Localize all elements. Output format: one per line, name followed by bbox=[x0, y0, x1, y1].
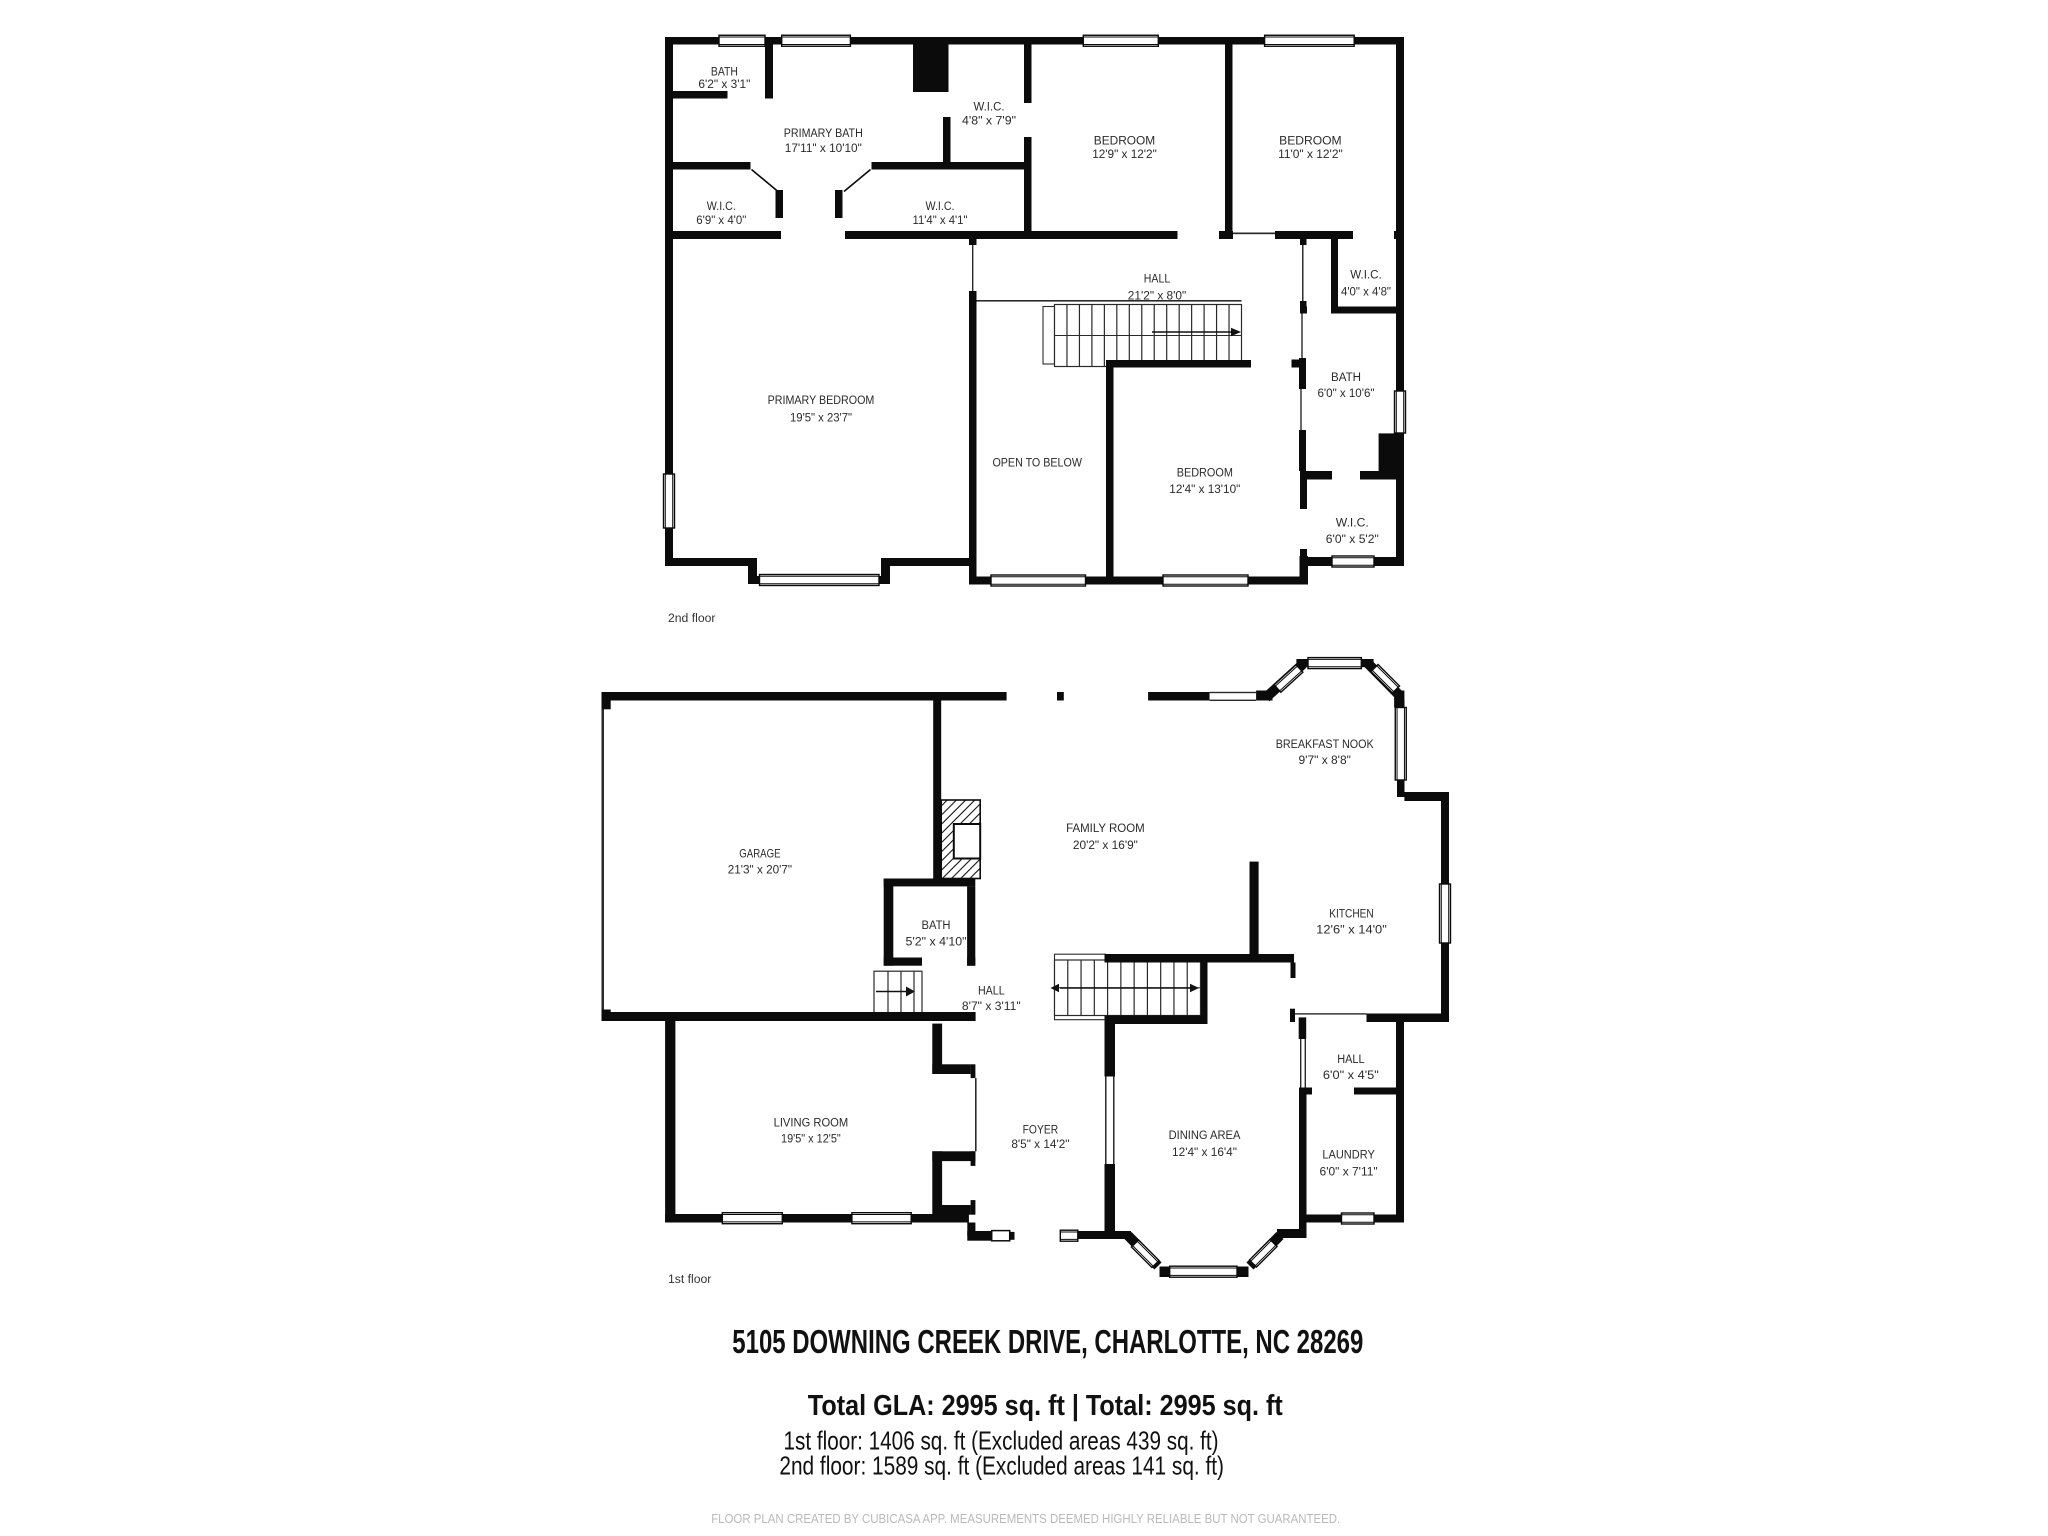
svg-text:BREAKFAST NOOK: BREAKFAST NOOK bbox=[1276, 737, 1375, 751]
svg-text:4'8" x 7'9": 4'8" x 7'9" bbox=[962, 114, 1016, 128]
svg-text:BATH: BATH bbox=[1331, 370, 1361, 384]
svg-text:W.I.C.: W.I.C. bbox=[1350, 268, 1382, 282]
svg-text:DINING AREA: DINING AREA bbox=[1169, 1128, 1241, 1142]
svg-text:12'9" x 12'2": 12'9" x 12'2" bbox=[1092, 147, 1157, 161]
svg-text:BEDROOM: BEDROOM bbox=[1094, 134, 1155, 148]
svg-text:17'11" x 10'10": 17'11" x 10'10" bbox=[785, 141, 862, 155]
svg-text:12'4" x 16'4": 12'4" x 16'4" bbox=[1172, 1145, 1237, 1159]
svg-text:12'4" x 13'10": 12'4" x 13'10" bbox=[1169, 482, 1240, 496]
svg-text:W.I.C.: W.I.C. bbox=[974, 100, 1005, 114]
svg-text:6'0" x 5'2": 6'0" x 5'2" bbox=[1326, 532, 1379, 546]
svg-text:OPEN TO BELOW: OPEN TO BELOW bbox=[992, 456, 1082, 470]
svg-text:21'2" x 8'0": 21'2" x 8'0" bbox=[1128, 289, 1187, 303]
svg-text:FOYER: FOYER bbox=[1023, 1123, 1059, 1137]
svg-text:8'7" x 3'11": 8'7" x 3'11" bbox=[962, 999, 1021, 1013]
svg-text:BATH: BATH bbox=[922, 918, 951, 932]
svg-text:BEDROOM: BEDROOM bbox=[1279, 134, 1342, 148]
svg-text:11'4" x 4'1": 11'4" x 4'1" bbox=[913, 213, 968, 227]
svg-text:4'0" x 4'8": 4'0" x 4'8" bbox=[1341, 285, 1391, 299]
svg-text:Total GLA: 2995 sq. ft | Total: Total GLA: 2995 sq. ft | Total: 2995 sq.… bbox=[808, 1390, 1283, 1422]
svg-text:HALL: HALL bbox=[1144, 272, 1170, 286]
svg-text:GARAGE: GARAGE bbox=[739, 847, 780, 861]
svg-text:6'0" x 7'11": 6'0" x 7'11" bbox=[1320, 1165, 1378, 1179]
svg-text:BEDROOM: BEDROOM bbox=[1177, 466, 1233, 480]
svg-text:5'2" x 4'10": 5'2" x 4'10" bbox=[906, 935, 967, 949]
svg-text:8'5" x 14'2": 8'5" x 14'2" bbox=[1011, 1137, 1069, 1151]
svg-text:19'5" x 23'7": 19'5" x 23'7" bbox=[790, 411, 852, 425]
svg-text:2nd floor: 2nd floor bbox=[668, 611, 715, 625]
svg-text:12'6" x 14'0": 12'6" x 14'0" bbox=[1316, 923, 1387, 937]
svg-text:FLOOR PLAN CREATED BY CUBICASA: FLOOR PLAN CREATED BY CUBICASA APP. MEAS… bbox=[711, 1511, 1340, 1526]
svg-text:KITCHEN: KITCHEN bbox=[1329, 907, 1373, 921]
svg-text:W.I.C.: W.I.C. bbox=[1336, 516, 1369, 530]
svg-text:HALL: HALL bbox=[978, 983, 1005, 997]
svg-text:21'3" x 20'7": 21'3" x 20'7" bbox=[728, 863, 792, 877]
svg-text:6'9" x 4'0": 6'9" x 4'0" bbox=[696, 213, 746, 227]
svg-text:W.I.C.: W.I.C. bbox=[707, 199, 736, 213]
svg-text:20'2" x 16'9": 20'2" x 16'9" bbox=[1073, 838, 1138, 852]
svg-text:PRIMARY BEDROOM: PRIMARY BEDROOM bbox=[768, 393, 875, 407]
svg-text:11'0" x 12'2": 11'0" x 12'2" bbox=[1278, 147, 1343, 161]
svg-text:6'2" x 3'1": 6'2" x 3'1" bbox=[698, 77, 750, 91]
svg-text:6'0" x 10'6": 6'0" x 10'6" bbox=[1318, 386, 1375, 400]
svg-text:5105 DOWNING CREEK DRIVE, CHAR: 5105 DOWNING CREEK DRIVE, CHARLOTTE, NC … bbox=[732, 1323, 1363, 1360]
svg-text:LAUNDRY: LAUNDRY bbox=[1322, 1148, 1374, 1162]
svg-text:1st floor: 1st floor bbox=[668, 1272, 711, 1286]
svg-text:9'7" x 8'8": 9'7" x 8'8" bbox=[1299, 753, 1351, 767]
svg-text:W.I.C.: W.I.C. bbox=[926, 199, 955, 213]
svg-text:6'0" x 4'5": 6'0" x 4'5" bbox=[1323, 1068, 1379, 1082]
svg-text:FAMILY ROOM: FAMILY ROOM bbox=[1066, 821, 1145, 835]
svg-text:LIVING ROOM: LIVING ROOM bbox=[774, 1116, 849, 1130]
svg-text:19'5" x 12'5": 19'5" x 12'5" bbox=[781, 1132, 841, 1146]
svg-text:2nd floor: 1589 sq. ft (Exclud: 2nd floor: 1589 sq. ft (Excluded areas 1… bbox=[779, 1451, 1224, 1481]
svg-text:HALL: HALL bbox=[1337, 1052, 1364, 1066]
svg-text:PRIMARY BATH: PRIMARY BATH bbox=[784, 126, 863, 140]
